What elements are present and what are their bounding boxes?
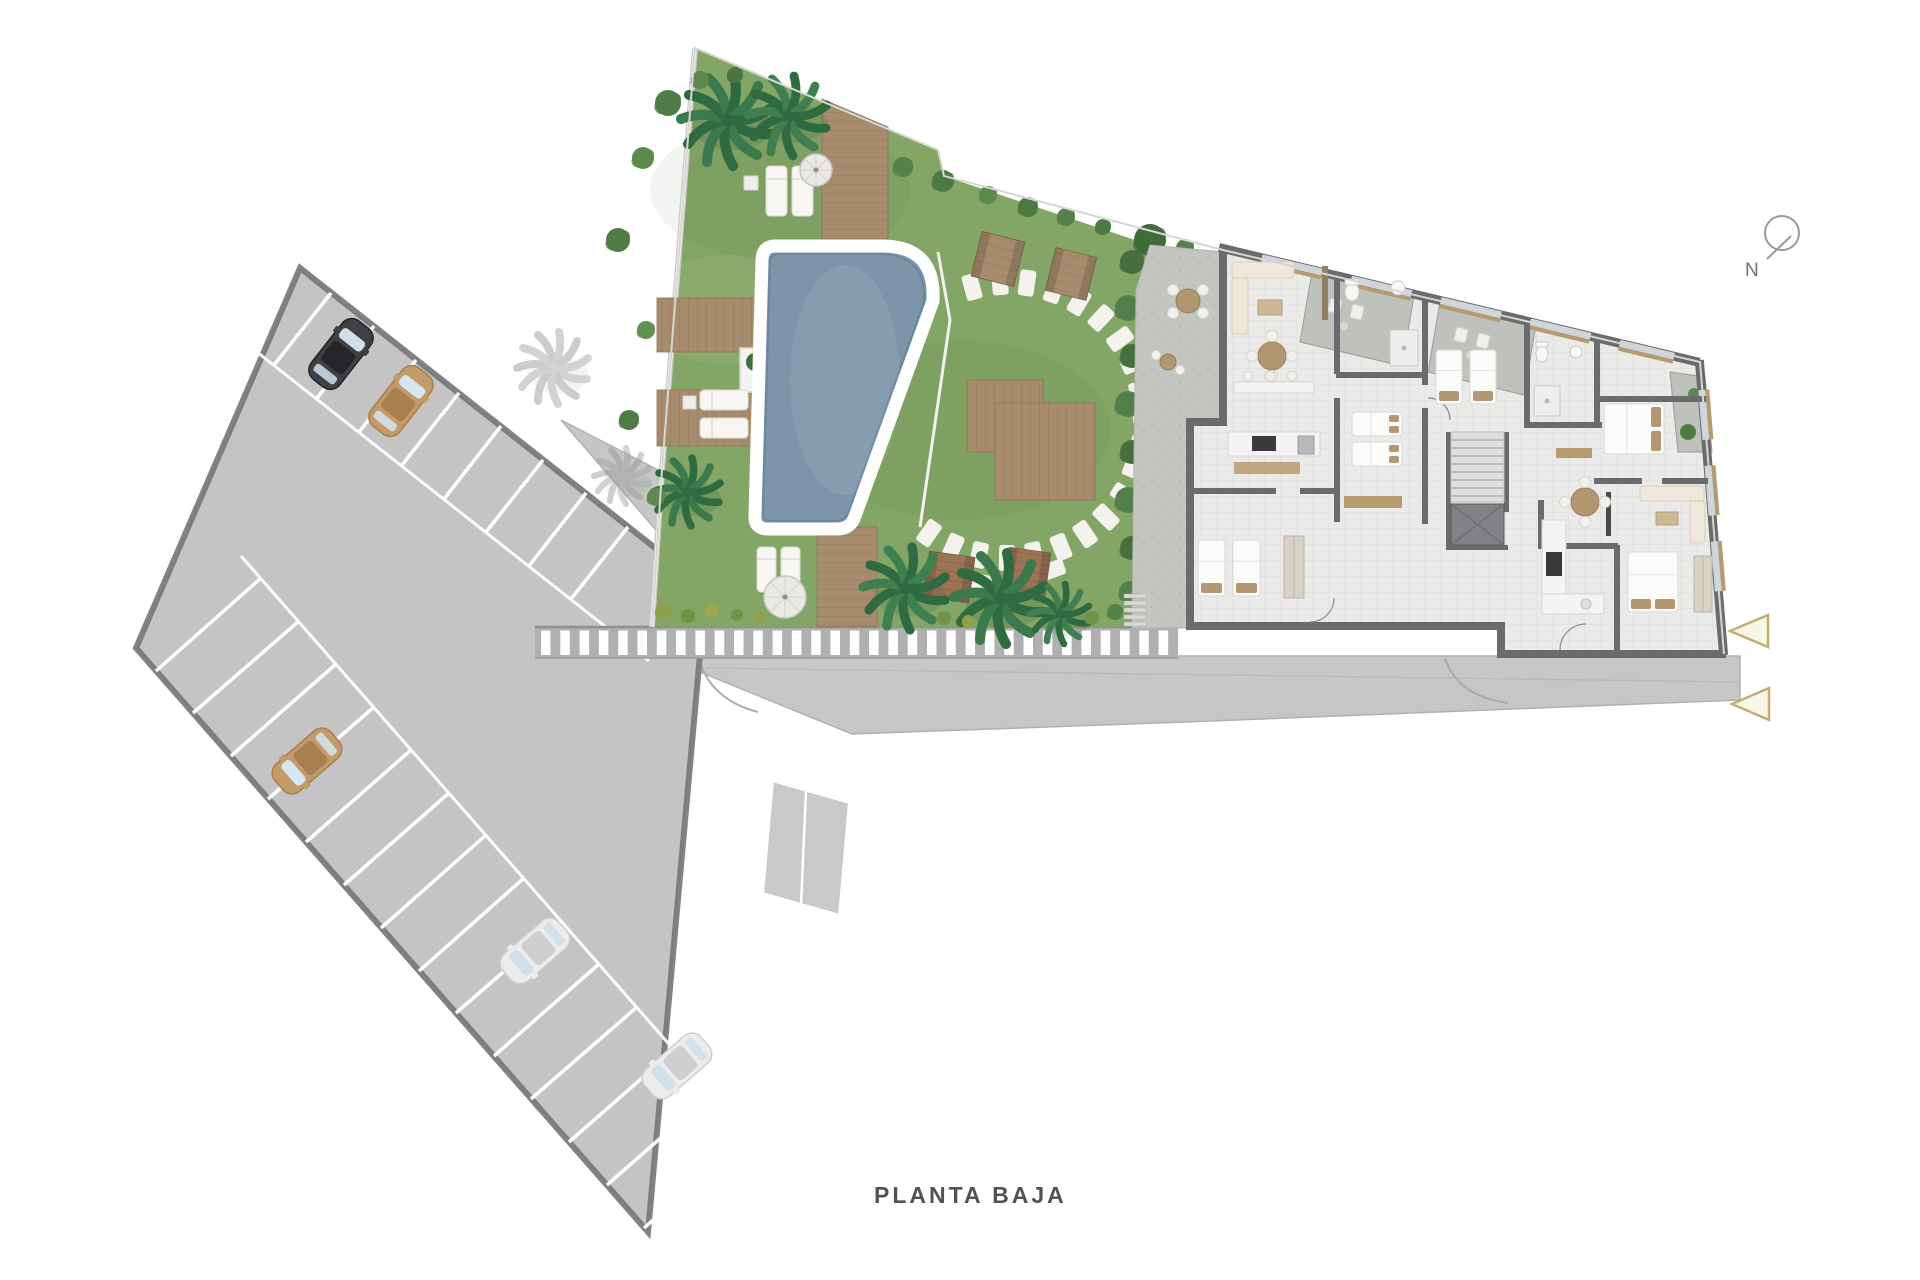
side-table <box>683 396 696 409</box>
fridge <box>1298 436 1314 454</box>
bed <box>1198 540 1225 596</box>
site-plan-page: N PLANTA BAJA <box>0 0 1920 1280</box>
sun-lounger <box>700 390 748 410</box>
bed <box>1233 540 1260 596</box>
bench <box>1344 496 1402 508</box>
north-compass: N <box>1745 216 1799 281</box>
coffee-table <box>1258 300 1282 315</box>
bed <box>1628 552 1678 612</box>
garden <box>605 48 1194 644</box>
sofa <box>1232 278 1248 334</box>
bed <box>1604 404 1664 454</box>
compass-label: N <box>1745 260 1759 281</box>
bed <box>1352 412 1402 436</box>
side-table <box>744 176 758 190</box>
stairs <box>1451 432 1504 502</box>
sofa <box>1690 501 1705 543</box>
coffee-table <box>1656 512 1678 525</box>
bed <box>1436 350 1462 404</box>
breakfast-bar <box>1234 382 1314 393</box>
cooktop <box>1546 552 1562 576</box>
dining-table <box>1258 342 1286 370</box>
sofa <box>1640 486 1704 501</box>
site-plan: N <box>0 0 1920 1280</box>
bed <box>1470 350 1496 404</box>
sink <box>1581 599 1591 609</box>
floor-label: PLANTA BAJA <box>874 1182 1067 1209</box>
entrance-arrow-icon <box>1730 615 1768 647</box>
kitchen-counter <box>1542 594 1604 614</box>
terrace-plant <box>1680 424 1696 440</box>
sideboard <box>1234 462 1300 474</box>
compass-needle-icon <box>1767 236 1791 259</box>
sun-lounger <box>766 166 787 216</box>
pavilion-deck-main <box>995 403 1095 500</box>
bench <box>1556 448 1592 458</box>
pool-highlight <box>790 265 900 495</box>
sun-lounger <box>700 418 748 438</box>
cooktop <box>1252 436 1276 451</box>
dining-table <box>1571 488 1599 516</box>
stair-core <box>1451 432 1504 545</box>
bed <box>1352 442 1402 466</box>
